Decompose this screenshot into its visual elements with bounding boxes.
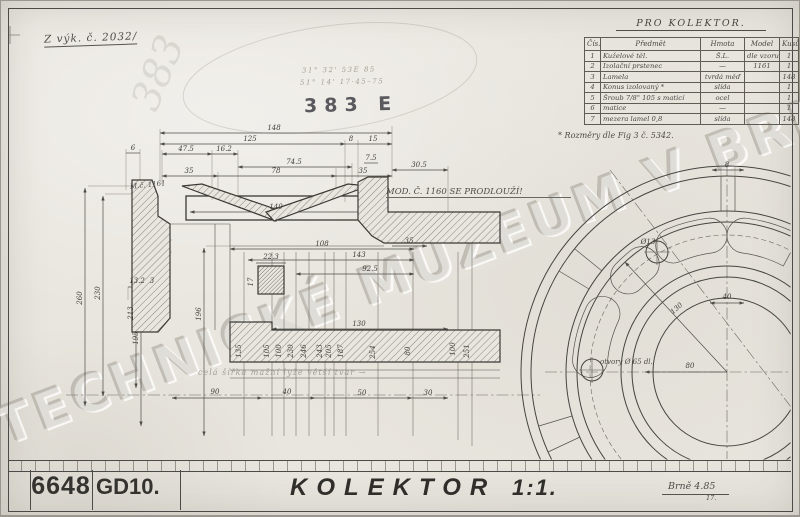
dim-label-b230: 230 [287,344,295,359]
left-flange-hatched [132,180,170,332]
parts-table-title: PRO KOLEKTOR. [616,18,766,31]
path-shape [2,26,20,44]
dim-label-h50: 50 [358,389,367,397]
dim-label-d35c: 35 [405,237,414,245]
dim-label-f130: 130 [669,301,685,316]
parts-cell: 1161 [745,61,780,72]
parts-row: 1Kuželové těl.Š.L.dle vzoru1 [585,51,799,62]
parts-column-header: Čís. [585,38,601,51]
tbody-shape: 1Kuželové těl.Š.L.dle vzoru12Izolační pr… [585,51,799,125]
dim-label-d140: 140 [269,203,283,211]
thead-shape: Čís.PředmětHmotaModelKusů [585,38,799,51]
dim-label-d130: 130 [352,320,366,328]
dim-label-d17: 17 [247,277,255,286]
note-holes: otvory Ø 65 dl. [600,358,653,366]
parts-cell: Šroub 7/8" 105 s maticí [601,93,701,104]
dim-label-d6: 6 [131,144,136,152]
section-view [66,126,540,446]
path-shape [727,218,800,266]
parts-cell: matice [601,103,701,114]
parts-cell [745,114,780,125]
dim-label-b243: 243 [316,344,324,359]
parts-cell: Š.L. [701,51,745,62]
parts-column-header: Kusů [780,38,799,51]
drawing-scale: 1:1. [512,475,558,501]
parts-cell: tvrdá měď [701,72,745,83]
dim-label-v213: 213 [127,306,135,321]
dim-label-d3: 3 [150,277,155,285]
parts-cell: Kuželové těl. [601,51,701,62]
parts-cell: 4 [585,82,601,93]
parts-cell: ocel [701,93,745,104]
dim-label-d7_5: 7.5 [365,154,377,162]
parts-header-row: Čís.PředmětHmotaModelKusů [585,38,799,51]
parts-column-header: Hmota [701,38,745,51]
registration-mark [2,26,20,44]
pencil-note-bottom: celá šířka mažní lyže větší tvar → [198,368,366,377]
note-mod-extension: MOD. Č. 1160 SE PRODLOUŽÍ! [386,187,571,198]
parts-cell: 1 [585,51,601,62]
front-centerlines [545,164,791,459]
dim-label-f80: 80 [686,362,695,370]
dim-label-d16_2: 16.2 [216,145,232,153]
parts-cell: 5 [585,93,601,104]
parts-column-header: Předmět [601,38,701,51]
dim-label-d143: 143 [352,251,366,259]
dim-label-d74_5: 74.5 [286,158,302,166]
dim-label-b135: 135 [235,344,243,358]
title-block-tick-strip [8,460,791,472]
parts-table: Čís.PředmětHmotaModelKusů 1Kuželové těl.… [584,37,799,125]
parts-cell: 3 [585,72,601,83]
parts-cell: 1 [780,51,799,62]
signature: Brně 4.85 [662,481,729,495]
parts-cell: 1 [780,103,799,114]
drawing-number: 6648 [30,472,92,501]
parts-cell [745,103,780,114]
pencil-note-line2: 51° 14' 17·45–75 [300,77,384,86]
dim-label-b205: 205 [325,344,333,359]
dim-label-d8: 8 [349,135,354,143]
dim-label-d78: 78 [272,167,281,175]
dim-label-d35a: 35 [185,167,194,175]
parts-row: 7mezera lamel 0,8slída148 [585,114,799,125]
path-shape [656,218,727,263]
parts-column-header: Model [745,38,780,51]
dim-label-b100a: 100 [275,344,283,358]
dim-label-d108: 108 [315,240,329,248]
parts-cell: 2 [585,61,601,72]
parts-cell: 1 [780,61,799,72]
dim-label-d30_5: 30.5 [411,161,427,169]
parts-cell: slída [701,114,745,125]
dim-label-b80: 80 [404,346,412,355]
parts-cell: slída [701,82,745,93]
dim-label-h40: 40 [282,388,292,396]
pencil-note-line1: 31° 32' 53E 85 [302,65,376,74]
parts-cell: — [701,103,745,114]
parts-cell [745,82,780,93]
dim-label-d22_3: 22.3 [262,253,279,261]
note-dimensions-reference: * Rozměry dle Fig 3 č. 5342. [558,131,674,140]
dim-label-b100b: 100 [449,342,457,356]
dim-label-b254: 254 [369,345,377,359]
dim-label-h30: 30 [424,389,433,397]
dim-label-b187: 187 [337,344,345,358]
parts-row: 3Lamelatvrdá měď148 [585,72,799,83]
lightening-slots [573,218,800,377]
parts-row: 4Konus izolovaný *slída1 [585,82,799,93]
parts-cell: mezera lamel 0,8 [601,114,701,125]
parts-row: 5Šroub 7/8" 105 s maticíocel1 [585,93,799,104]
parts-cell: 1 [780,93,799,104]
parts-cell: 6 [585,103,601,114]
parts-cell: 1 [780,82,799,93]
drawing-title: KOLEKTOR [290,474,496,502]
dim-label-f40: 40 [722,293,732,301]
parts-cell: Izolační prstenec [601,61,701,72]
parts-cell: 7 [585,114,601,125]
parts-cell: dle vzoru [745,51,780,62]
front-dimension-lines [625,166,744,372]
dim-label-b246: 246 [300,344,308,359]
dim-label-v260: 260 [76,291,84,306]
dim-label-f13: Ø13 [640,238,656,246]
spokes [539,176,735,452]
dim-label-b105: 105 [263,344,271,358]
parts-row: 6matice—1 [585,103,799,114]
parts-cell [745,93,780,104]
drawing-code: GD10. [96,474,180,500]
dim-label-d47_5: 47.5 [177,145,194,153]
dim-label-d92_5: 92.5 [362,265,378,273]
title-block-divider [92,470,93,510]
dim-label-d15: 15 [369,135,378,143]
path-shape [559,249,602,289]
keyway-block [258,266,284,294]
path-shape [126,126,448,212]
parts-row: 2Izolační prstenec—11611 [585,61,799,72]
parts-cell: 148 [780,72,799,83]
parts-cell: Lamela [601,72,701,83]
parts-cell [745,72,780,83]
dim-label-v195: 195 [132,331,140,345]
parts-table-block: PRO KOLEKTOR. Čís.PředmětHmotaModelKusů … [584,18,798,125]
parts-cell: 148 [780,114,799,125]
signature-sub: 17. [706,494,716,502]
dim-label-d35b: 35 [359,167,368,175]
path-shape [721,176,735,211]
dim-label-d125: 125 [243,135,257,143]
dim-label-f8: 8 [725,161,730,169]
dim-label-h90: 90 [211,388,220,396]
parts-cell: Konus izolovaný * [601,82,701,93]
title-block-divider [180,470,181,510]
dim-label-v196: 196 [195,307,203,321]
stamp-383e: 383 E [304,93,399,117]
dim-label-b251: 251 [463,344,471,358]
dim-label-d148: 148 [267,124,281,132]
parts-cell: — [701,61,745,72]
dim-label-d13_2: 13.2 [129,277,145,285]
dim-label-v230: 230 [94,286,102,301]
